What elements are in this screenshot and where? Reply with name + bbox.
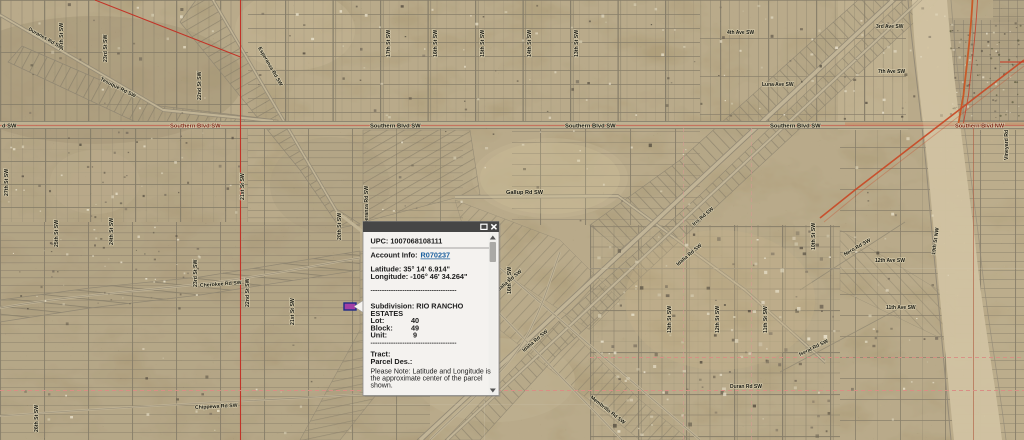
svg-text:shown.: shown. <box>371 383 393 390</box>
svg-text:12th St SW: 12th St SW <box>715 306 721 333</box>
svg-text:Southern Blvd SW: Southern Blvd SW <box>565 123 616 129</box>
svg-text:22nd St SW: 22nd St SW <box>197 71 203 100</box>
svg-text:13th St SW: 13th St SW <box>667 306 673 333</box>
svg-text:11th St SW: 11th St SW <box>763 306 769 333</box>
svg-text:------------------------------: -------------------------------------- <box>371 288 457 295</box>
svg-text:d SW: d SW <box>2 123 17 129</box>
svg-text:Southern Blvd SW: Southern Blvd SW <box>770 123 821 129</box>
svg-text:13th St SW: 13th St SW <box>574 30 580 57</box>
svg-text:Duran Rd SW: Duran Rd SW <box>730 384 762 390</box>
svg-text:------------------------------: -------------------------------------- <box>371 340 457 347</box>
svg-text:12th Ave SW: 12th Ave SW <box>875 258 905 264</box>
svg-text:21st St SW: 21st St SW <box>240 173 246 200</box>
svg-text:16th St SW: 16th St SW <box>433 30 439 57</box>
svg-text:26th St SW: 26th St SW <box>34 405 40 432</box>
svg-text:Southern Blvd NW: Southern Blvd NW <box>955 124 1005 130</box>
svg-text:3rd Ave SW: 3rd Ave SW <box>876 24 904 30</box>
svg-text:24th St SW: 24th St SW <box>109 218 115 245</box>
svg-text:Southern Blvd SW: Southern Blvd SW <box>370 123 421 129</box>
svg-text:7th Ave SW: 7th Ave SW <box>878 69 905 75</box>
svg-text:11th Ave SW: 11th Ave SW <box>886 305 916 311</box>
svg-text:14th St SW: 14th St SW <box>527 30 533 57</box>
svg-text:20th St SW: 20th St SW <box>337 213 343 240</box>
svg-text:17th St SW: 17th St SW <box>386 30 392 57</box>
svg-text:15th St SW: 15th St SW <box>480 30 486 57</box>
svg-text:Luna Ave SW: Luna Ave SW <box>762 82 794 88</box>
svg-text:UPC: 1007068108111: UPC: 1007068108111 <box>371 237 443 246</box>
svg-text:the approximate center of the: the approximate center of the parcel <box>371 376 484 383</box>
svg-text:Southern Blvd SW: Southern Blvd SW <box>170 123 221 129</box>
svg-text:Unit:: Unit: <box>371 331 388 340</box>
svg-text:22nd St SW: 22nd St SW <box>245 278 251 307</box>
svg-text:Longitude: -106° 46' 34.264": Longitude: -106° 46' 34.264" <box>371 272 468 281</box>
svg-text:Parcel Des.:: Parcel Des.: <box>371 357 413 366</box>
svg-text:10th St SW: 10th St SW <box>811 223 817 250</box>
svg-text:23rd St SW: 23rd St SW <box>103 35 109 62</box>
svg-text:27th St SW: 27th St SW <box>4 169 10 196</box>
svg-text:Vineyard Rd: Vineyard Rd <box>1004 130 1010 160</box>
svg-text:9: 9 <box>413 331 417 340</box>
svg-text:23rd St SW: 23rd St SW <box>193 260 199 287</box>
svg-text:Please Note: Latitude and Long: Please Note: Latitude and Longitude is <box>371 369 492 376</box>
svg-text:4th Ave SW: 4th Ave SW <box>727 30 754 36</box>
svg-text:Gallup Rd SW: Gallup Rd SW <box>506 190 544 196</box>
svg-text:Account Info:: Account Info: <box>371 251 418 260</box>
svg-text:R070237: R070237 <box>421 251 451 260</box>
svg-text:21st St SW: 21st St SW <box>290 298 296 325</box>
svg-text:25th St SW: 25th St SW <box>54 220 60 247</box>
